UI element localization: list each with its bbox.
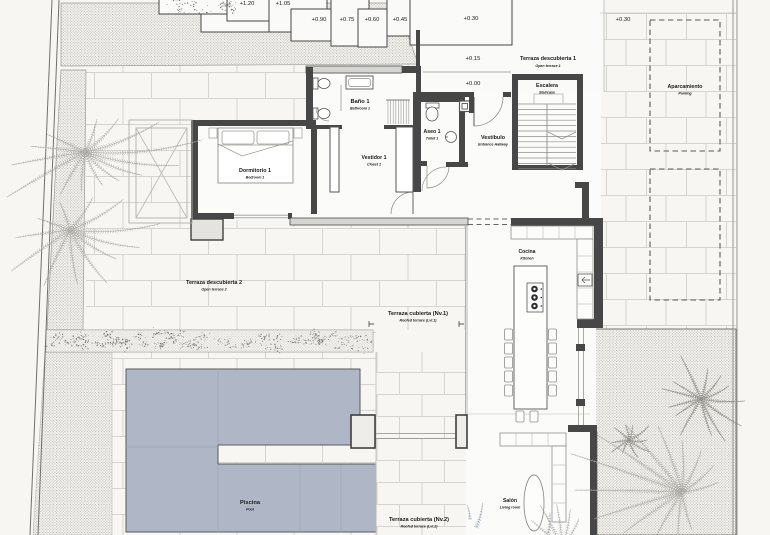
svg-text:Bedroom 1: Bedroom 1: [246, 176, 265, 180]
svg-text:Piscina: Piscina: [240, 500, 261, 506]
svg-text:+0.15: +0.15: [466, 56, 481, 62]
svg-text:+0.90: +0.90: [312, 17, 327, 23]
svg-text:+0.00: +0.00: [466, 81, 481, 87]
svg-text:Open terrace 2: Open terrace 2: [201, 288, 226, 292]
svg-text:Terraza cubierta (Nv.2): Terraza cubierta (Nv.2): [389, 517, 449, 523]
svg-text:+0.45: +0.45: [393, 17, 408, 23]
svg-text:+0.75: +0.75: [340, 17, 355, 23]
svg-text:Escalera: Escalera: [536, 83, 559, 89]
svg-text:Aseo 1: Aseo 1: [424, 129, 441, 135]
svg-text:Closet 1: Closet 1: [367, 163, 381, 167]
svg-text:Parking: Parking: [678, 92, 692, 96]
svg-text:Toilet 1: Toilet 1: [426, 137, 438, 141]
svg-text:Dormitorio 1: Dormitorio 1: [239, 168, 272, 174]
svg-text:Pool: Pool: [246, 508, 255, 512]
svg-text:+0.30: +0.30: [616, 17, 631, 23]
svg-text:Open terrace 1: Open terrace 1: [535, 64, 560, 68]
svg-text:Living room: Living room: [500, 506, 521, 510]
svg-text:Vestíbulo: Vestíbulo: [481, 135, 506, 141]
svg-text:+1.20: +1.20: [240, 1, 255, 7]
svg-text:Terraza descubierta 2: Terraza descubierta 2: [186, 280, 242, 286]
svg-text:Baño 1: Baño 1: [351, 99, 370, 105]
svg-text:Roofed terrace (Lvl.1): Roofed terrace (Lvl.1): [400, 319, 438, 323]
svg-text:Salón: Salón: [503, 498, 518, 504]
svg-text:Kitchen: Kitchen: [520, 257, 534, 261]
svg-text:Entrance Hallway: Entrance Hallway: [478, 143, 509, 147]
svg-text:+0.30: +0.30: [464, 16, 479, 22]
svg-text:Vestidor 1: Vestidor 1: [362, 155, 387, 161]
svg-text:+1.05: +1.05: [276, 1, 291, 7]
svg-text:Cocina: Cocina: [519, 249, 537, 255]
svg-text:Bathroom 1: Bathroom 1: [350, 107, 370, 111]
svg-text:Terraza cubierta (Nv.1): Terraza cubierta (Nv.1): [388, 311, 448, 317]
svg-text:Staircase: Staircase: [539, 91, 555, 95]
svg-text:Terraza descubierta 1: Terraza descubierta 1: [520, 56, 576, 62]
svg-text:Aparcamiento: Aparcamiento: [668, 84, 704, 90]
svg-text:Roofed terrace (Lvl.2): Roofed terrace (Lvl.2): [401, 525, 439, 529]
svg-text:+0.60: +0.60: [365, 17, 380, 23]
